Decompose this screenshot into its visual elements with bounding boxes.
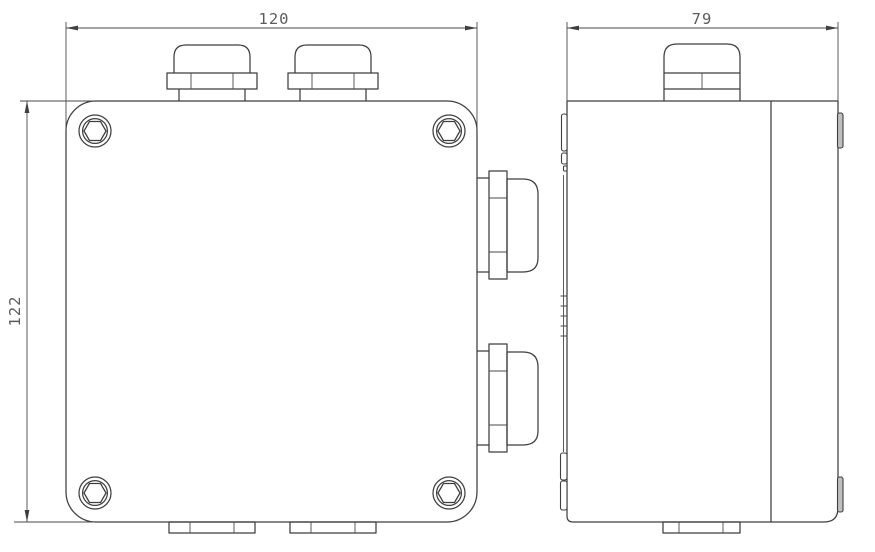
dimension-height-value: 122 <box>6 296 24 327</box>
corner-screw-top-right-icon <box>433 115 465 147</box>
hinge-pin-bottom <box>838 477 844 512</box>
corner-screw-top-left-icon <box>79 115 111 147</box>
cable-gland-top-right <box>288 45 378 101</box>
cable-gland-bottom-right-nut <box>290 522 376 533</box>
cable-gland-side-lower <box>477 344 538 452</box>
enclosure-drawing: 120 79 122 <box>0 0 875 552</box>
corner-screw-bottom-left-icon <box>79 477 111 509</box>
cable-gland-side-view-bottom-nut <box>663 522 740 533</box>
cable-gland-top-left <box>167 45 257 101</box>
cable-gland-side-view-top <box>664 44 740 101</box>
dimension-depth: 79 <box>567 10 838 101</box>
dimension-width-value: 120 <box>259 10 290 28</box>
hinge-pin-top <box>838 113 844 148</box>
latch-detail-bottom <box>561 453 568 510</box>
side-view <box>561 44 844 533</box>
front-view-outline <box>66 101 477 522</box>
front-view <box>66 45 538 533</box>
latch-detail-top <box>562 114 568 171</box>
dimension-width: 120 <box>66 10 477 131</box>
cable-gland-side-upper <box>477 171 538 279</box>
corner-screw-bottom-right-icon <box>433 477 465 509</box>
side-view-outline <box>567 101 838 522</box>
technical-drawing-canvas: 120 79 122 <box>0 0 875 552</box>
cable-gland-bottom-left-nut <box>169 522 255 533</box>
dimension-height: 122 <box>6 101 94 522</box>
dimension-depth-value: 79 <box>692 10 713 28</box>
